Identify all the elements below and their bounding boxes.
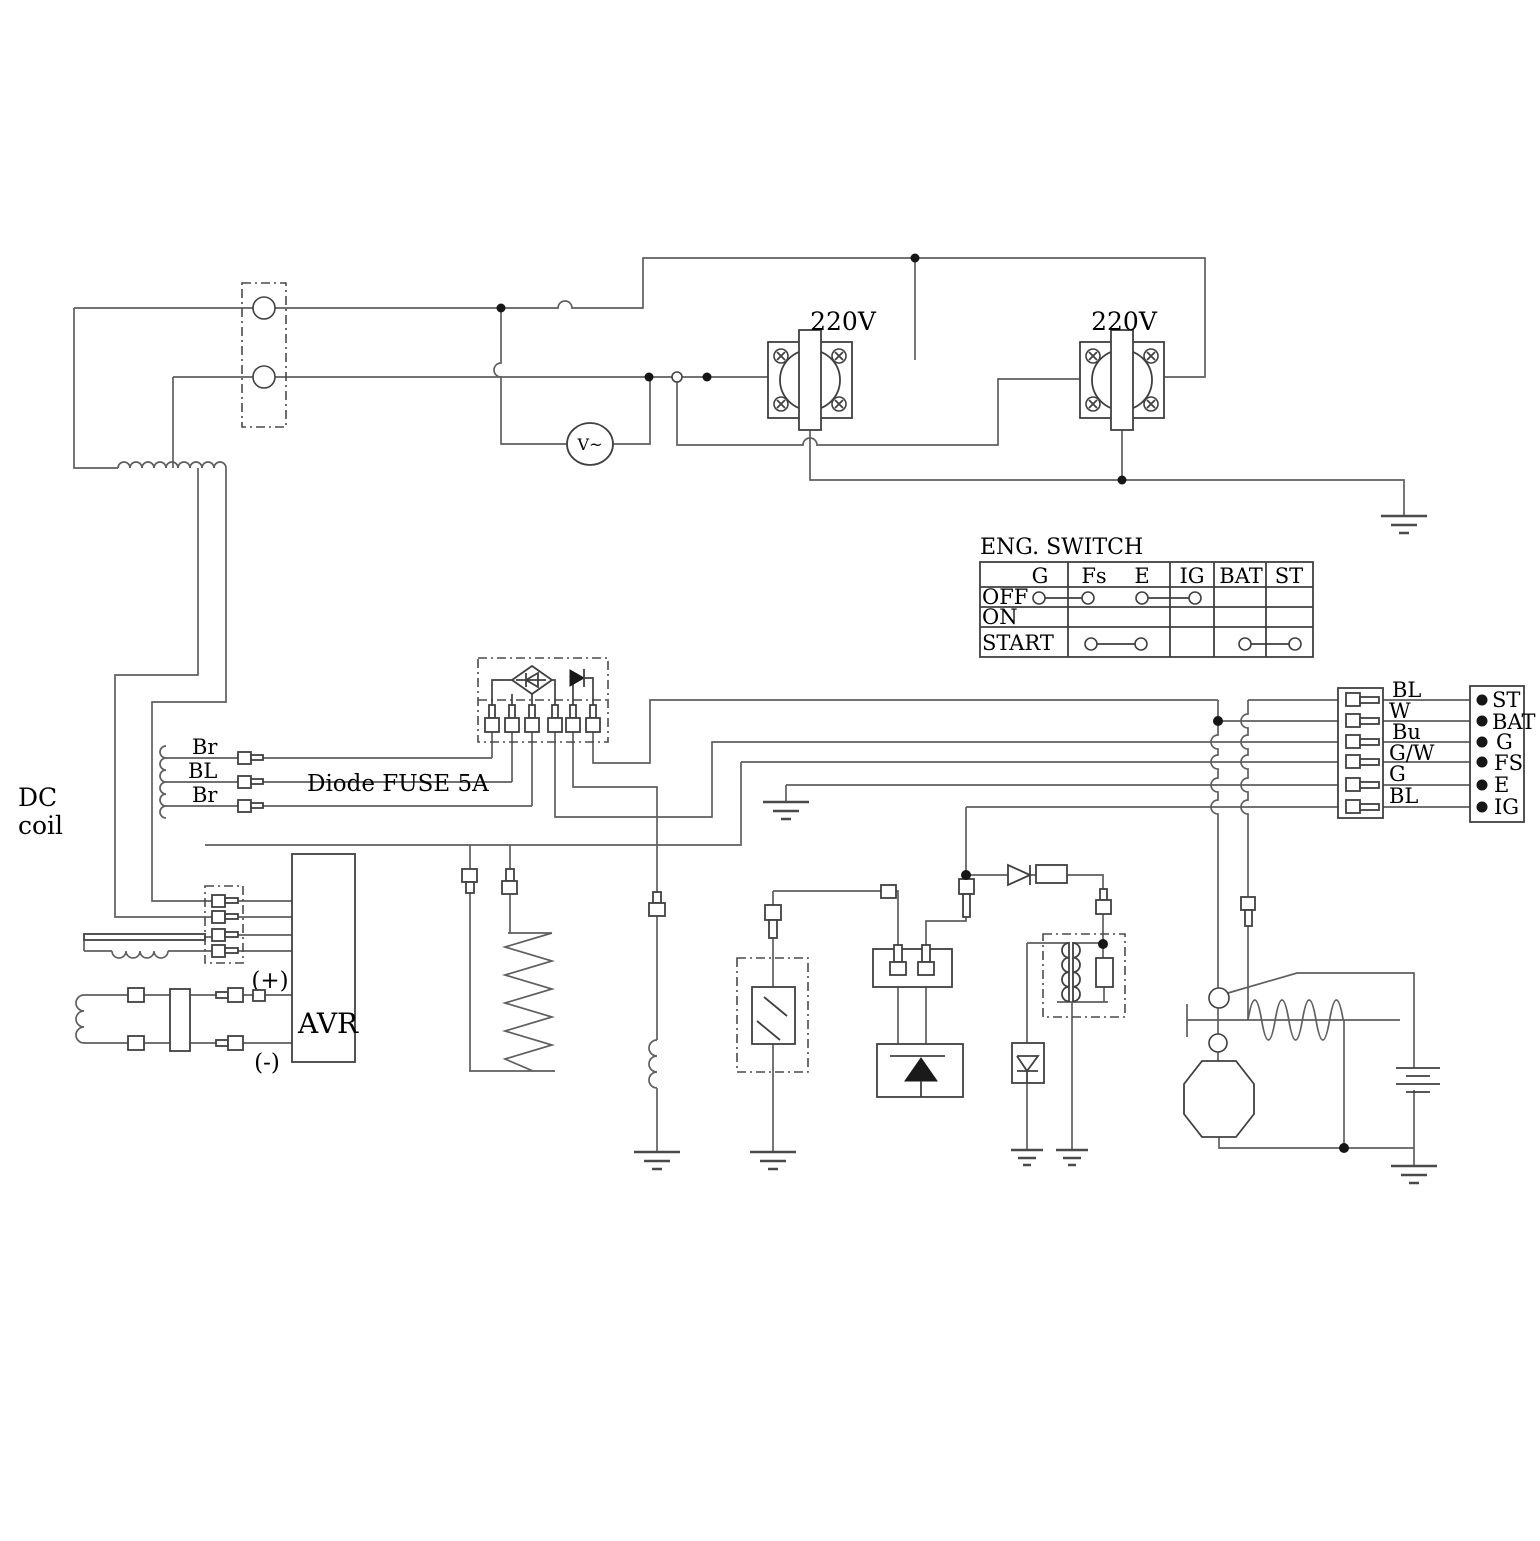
col-ig: IG xyxy=(1179,564,1204,588)
spark-diode xyxy=(1012,1043,1044,1083)
resistor-winding xyxy=(462,869,517,894)
col-bat: BAT xyxy=(1219,564,1262,588)
outlet-right-voltage: 220V xyxy=(1091,307,1158,336)
generator-wiring-diagram: V~ 220V 220V ENG. SWITCH G Fs xyxy=(0,0,1540,1541)
outlet-right: 220V xyxy=(1080,307,1164,430)
battery xyxy=(1396,1068,1440,1092)
wire-label-g: G xyxy=(1389,762,1406,786)
terminal-ig: IG xyxy=(1494,795,1519,819)
wire-color-br-bottom: Br xyxy=(192,783,218,807)
wire-label-bl-2: BL xyxy=(1389,784,1418,808)
dc-coil-label-1: DC xyxy=(18,783,57,812)
rotor-winding xyxy=(128,988,265,1051)
trigger-diode xyxy=(959,865,1111,917)
switch-contacts xyxy=(1033,592,1301,650)
wire-color-bl: BL xyxy=(188,759,217,783)
connector-pins xyxy=(485,705,600,732)
wiring-diagram-page: V~ 220V 220V ENG. SWITCH G Fs xyxy=(0,0,1540,1541)
wire-color-br-top: Br xyxy=(192,735,218,759)
two-pin-connector xyxy=(873,945,952,987)
terminal-strip: ST BAT G FS E IG xyxy=(1470,686,1535,822)
diode-fuse-block xyxy=(478,658,608,742)
avr-label: AVR xyxy=(297,1007,359,1040)
harness-connector: BL W Bu G/W G BL xyxy=(1338,678,1435,818)
dc-coil-winding: DC coil Br BL Br xyxy=(18,735,263,840)
terminal-fs: FS xyxy=(1494,751,1523,775)
dc-coil-label-2: coil xyxy=(18,811,63,840)
minus-label: (-) xyxy=(254,1050,280,1076)
eng-switch-title: ENG. SWITCH xyxy=(980,535,1143,560)
charge-coil xyxy=(649,892,665,916)
diode-fuse-label: Diode FUSE 5A xyxy=(307,771,489,797)
starter-motor xyxy=(1184,1061,1254,1137)
voltmeter-label: V~ xyxy=(577,435,603,454)
voltmeter: V~ xyxy=(567,423,613,465)
circuit-breaker xyxy=(242,283,286,427)
terminal-e: E xyxy=(1494,773,1509,797)
scr-unit xyxy=(877,1044,963,1097)
terminal-st: ST xyxy=(1492,688,1520,712)
eng-switch-table: ENG. SWITCH G Fs E IG BAT ST OFF ON STAR… xyxy=(980,535,1313,657)
row-on: ON xyxy=(982,605,1018,629)
col-st: ST xyxy=(1275,564,1303,588)
row-start: START xyxy=(982,631,1054,655)
col-e: E xyxy=(1134,564,1149,588)
outlet-left: 220V xyxy=(768,307,877,430)
outlet-left-voltage: 220V xyxy=(810,307,877,336)
col-fs: Fs xyxy=(1081,564,1106,588)
col-g: G xyxy=(1032,564,1049,588)
junction-dots xyxy=(497,254,1350,1154)
ignition-coil xyxy=(1043,934,1125,1017)
